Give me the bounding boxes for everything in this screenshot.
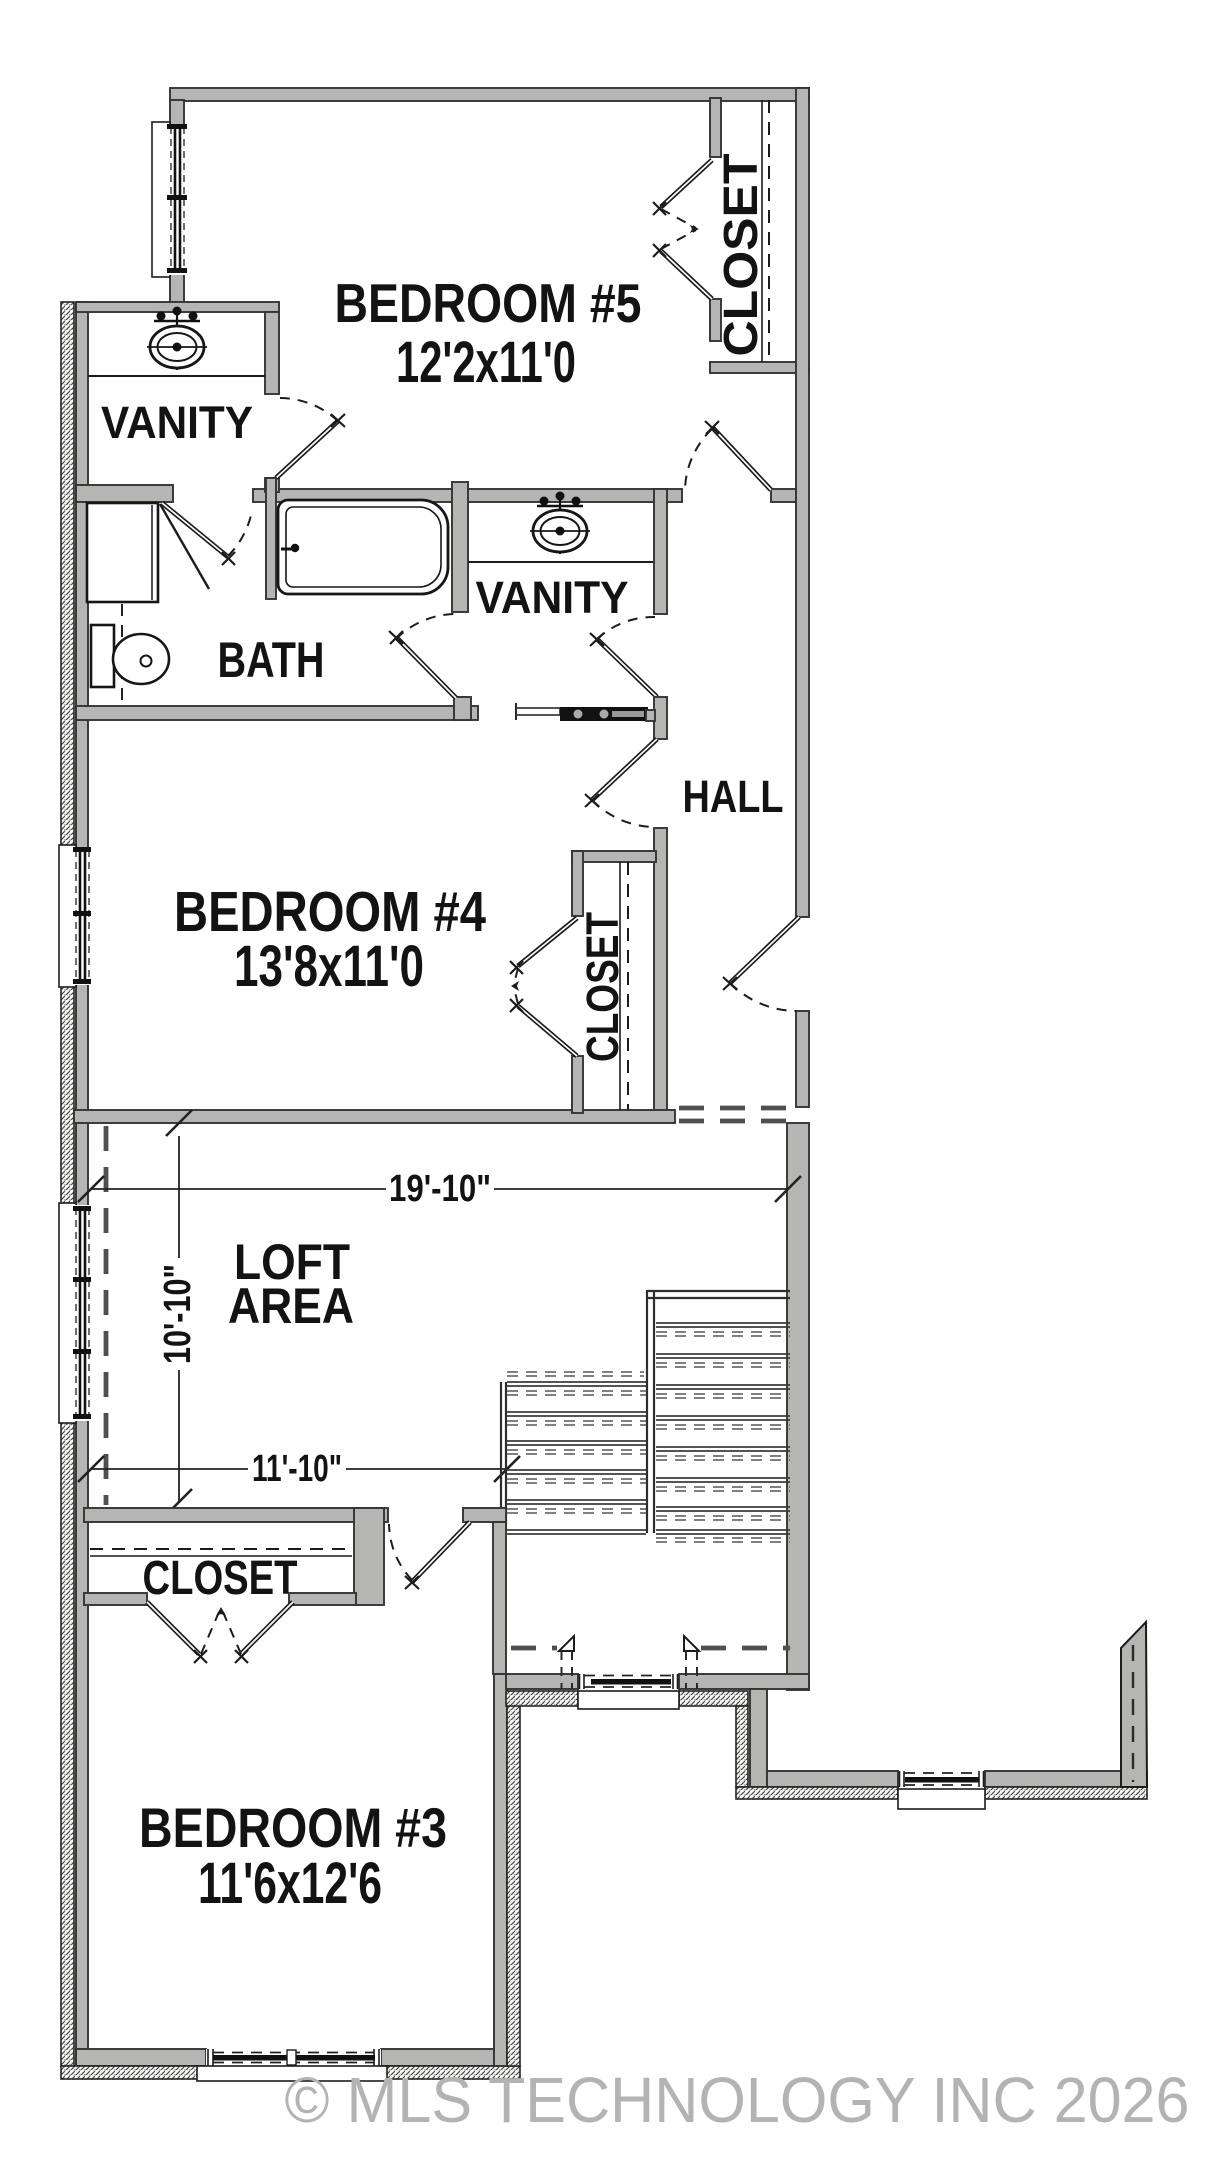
svg-text:12'2x11'0: 12'2x11'0 [396,330,576,395]
svg-text:HALL: HALL [683,771,784,822]
svg-text:BATH: BATH [218,632,325,688]
svg-text:VANITY: VANITY [476,572,629,623]
svg-text:10'-10": 10'-10" [157,1264,199,1364]
svg-text:CLOSET: CLOSET [577,912,628,1062]
svg-text:13'8x11'0: 13'8x11'0 [234,934,424,999]
svg-text:BEDROOM #5: BEDROOM #5 [335,272,642,334]
svg-text:19'-10": 19'-10" [389,1168,491,1210]
svg-text:AREA: AREA [228,1278,354,1334]
svg-text:VANITY: VANITY [101,397,253,448]
svg-text:CLOSET: CLOSET [715,154,768,357]
svg-text:11'6x12'6: 11'6x12'6 [198,1851,382,1916]
svg-text:BEDROOM #3: BEDROOM #3 [139,1796,447,1859]
svg-text:© MLS TECHNOLOGY INC 2026: © MLS TECHNOLOGY INC 2026 [285,2064,1190,2136]
svg-text:11'-10": 11'-10" [252,1448,342,1490]
svg-text:CLOSET: CLOSET [143,1552,298,1605]
